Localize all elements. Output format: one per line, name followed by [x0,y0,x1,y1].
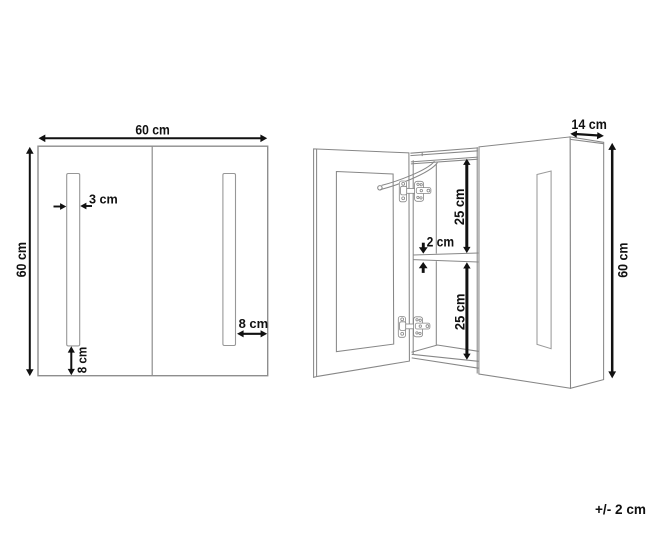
svg-text:3 cm: 3 cm [89,193,118,207]
svg-text:60 cm: 60 cm [135,123,169,138]
svg-text:+/- 2 cm: +/- 2 cm [595,501,646,517]
svg-text:60 cm: 60 cm [616,243,631,278]
svg-text:2 cm: 2 cm [427,234,455,249]
svg-text:25 cm: 25 cm [452,294,467,331]
svg-text:60 cm: 60 cm [14,242,29,277]
svg-text:25 cm: 25 cm [452,189,467,226]
svg-text:14 cm: 14 cm [571,117,606,132]
svg-text:8 cm: 8 cm [75,347,89,374]
svg-text:8 cm: 8 cm [239,317,269,331]
